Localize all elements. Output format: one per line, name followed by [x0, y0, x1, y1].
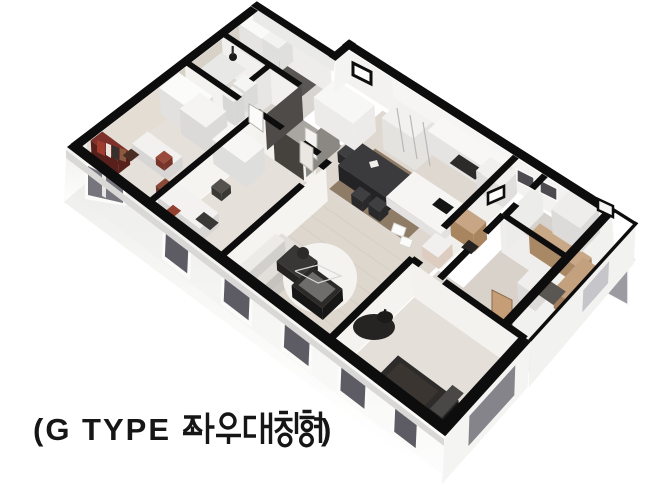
svg-text:): ) [321, 412, 331, 447]
svg-text:(G TYPE: (G TYPE [33, 412, 171, 447]
